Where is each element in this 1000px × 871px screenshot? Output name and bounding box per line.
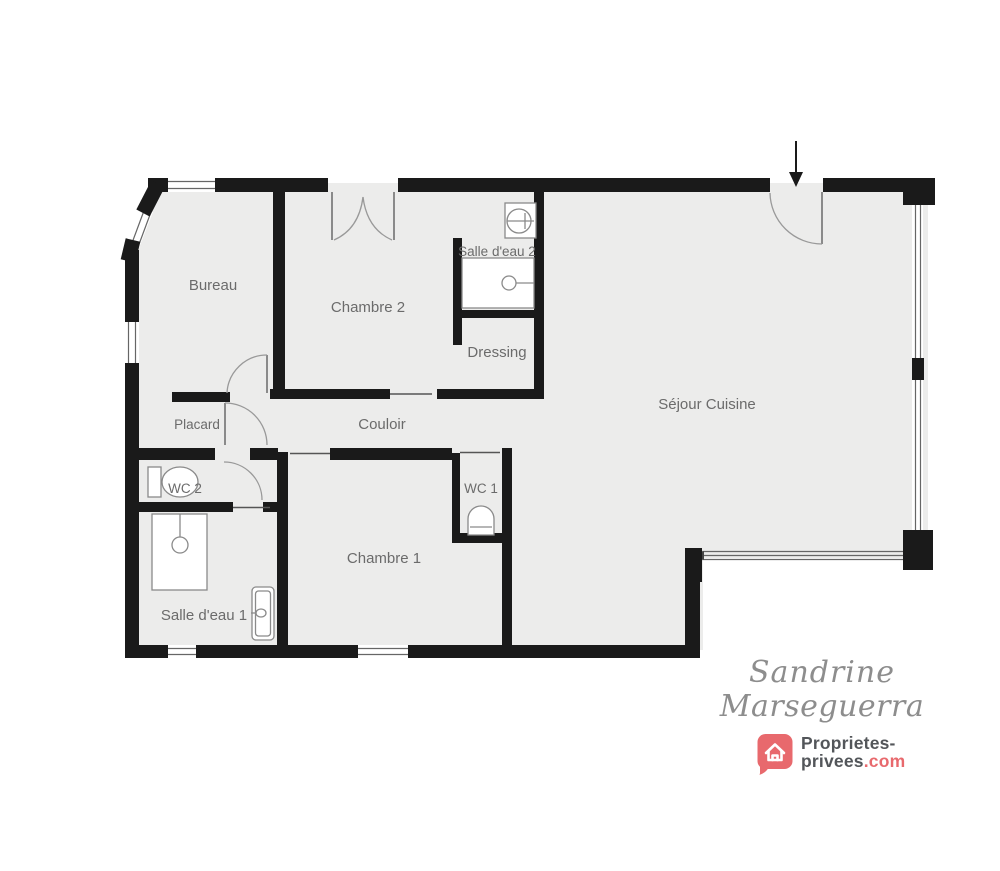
window-mullion	[912, 358, 924, 380]
window	[168, 645, 196, 658]
wall-segment	[273, 183, 285, 398]
room-label-chambre-2: Chambre 2	[331, 299, 405, 316]
wall-segment	[685, 578, 700, 658]
room-label-wc-1: WC 1	[464, 481, 498, 496]
wall-segment	[125, 645, 168, 658]
window	[358, 645, 408, 658]
room-label-salle-deau-2: Salle d'eau 2	[458, 244, 536, 259]
wall-segment	[215, 178, 328, 192]
wall-segment	[277, 452, 288, 645]
window	[168, 178, 215, 192]
wall-segment	[139, 448, 215, 460]
room-label-wc-2: WC 2	[168, 481, 202, 496]
room-label-chambre-1: Chambre 1	[347, 550, 421, 567]
wall-segment	[398, 178, 770, 192]
wall-segment	[250, 448, 278, 460]
wall-segment	[196, 645, 358, 658]
room-label-dressing: Dressing	[467, 344, 526, 361]
entrance-arrow-icon	[789, 141, 803, 187]
logo-text-line1: Proprietes-	[801, 734, 905, 752]
wall-segment	[270, 389, 390, 399]
sink-icon	[505, 203, 536, 238]
vanity-icon	[251, 587, 274, 640]
window	[125, 322, 139, 363]
logo-text-tld: .com	[864, 751, 906, 771]
house-icon	[756, 733, 794, 775]
agency-logo-text: Proprietes- privees.com	[801, 734, 905, 770]
wall-segment	[502, 448, 512, 645]
logo-text-name: privees	[801, 751, 864, 771]
shower-icon	[462, 258, 534, 308]
wall-segment	[437, 389, 544, 399]
wall-segment	[172, 392, 230, 402]
wall-segment	[455, 310, 534, 318]
agent-signature: Sandrine Marseguerra	[688, 656, 956, 724]
wall-segment	[903, 178, 935, 205]
agent-last-name: Marseguerra	[688, 690, 956, 724]
room-label-couloir: Couloir	[358, 416, 406, 433]
agency-logo: Proprietes- privees.com	[756, 733, 905, 775]
wall-segment	[903, 530, 933, 570]
shower-icon	[152, 514, 207, 590]
wall-segment	[139, 502, 233, 512]
floor-plan-page: Bureau Chambre 2 Salle d'eau 2 Dressing …	[0, 0, 1000, 871]
room-label-salle-deau-1: Salle d'eau 1	[161, 607, 247, 624]
toilet-icon	[468, 506, 494, 535]
wall-segment	[125, 363, 139, 658]
wall-segment	[408, 645, 700, 658]
agent-first-name: Sandrine	[688, 656, 956, 690]
room-label-placard: Placard	[174, 417, 220, 432]
room-label-sejour-cuisine: Séjour Cuisine	[658, 396, 756, 413]
wall-segment	[685, 548, 702, 582]
wall-segment	[452, 453, 460, 540]
wall-segment	[330, 448, 452, 460]
wall-segment	[125, 250, 139, 322]
room-label-bureau: Bureau	[189, 277, 237, 294]
